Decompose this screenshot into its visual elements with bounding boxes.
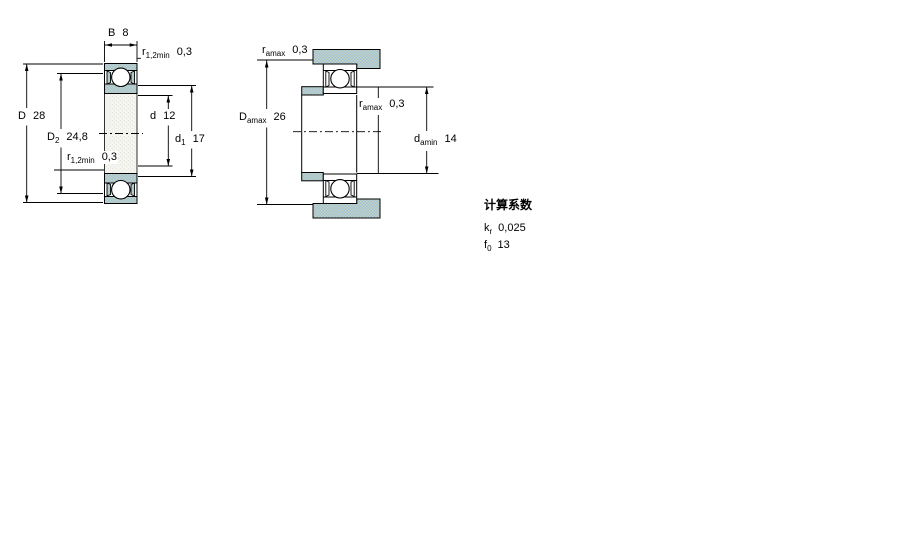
dimension-d1: [138, 86, 196, 177]
shield-left-top: [107, 71, 111, 84]
dimension-Damax: [257, 60, 313, 205]
label-r-bottom: r1,2min0,3: [66, 151, 118, 164]
bearing-top-section: [323, 64, 356, 94]
shield-right-bottom: [131, 183, 135, 196]
label-ra-top: ramax0,3: [261, 44, 309, 57]
label-damin: damin14: [413, 133, 458, 146]
calculation-factors-title: 计算系数: [484, 196, 532, 213]
label-r-top: r1,2min0,3: [141, 46, 193, 59]
label-D: D28: [17, 110, 46, 122]
shaft-shoulder-bottom: [302, 173, 324, 181]
label-d: d12: [149, 110, 176, 122]
label-D2: D224,8: [46, 131, 89, 144]
dimension-B: [105, 41, 138, 62]
ball-top: [112, 68, 130, 86]
shield-right-top: [131, 71, 135, 84]
bearing-bottom-section: [323, 174, 356, 204]
symbol-B: B: [108, 27, 115, 39]
dimension-d: [138, 96, 173, 167]
factor-kr: kr0,025: [484, 222, 532, 235]
factor-f0: f013: [484, 239, 532, 252]
value-B: 8: [122, 27, 128, 39]
right-abutment-view: [257, 50, 439, 219]
label-d1: d117: [174, 133, 206, 146]
shaft-edges: [302, 95, 357, 173]
ball-bottom: [112, 181, 130, 199]
shaft-shoulder-top: [302, 87, 324, 95]
left-bearing-section-view: [23, 41, 196, 204]
bearing-drawing-page: B8 r1,2min0,3 D28 D224,8 r1,2min0,3 d12 …: [0, 0, 900, 560]
calculation-factors-block: 计算系数 kr0,025 f013: [484, 196, 532, 256]
bearing-drawings: [0, 0, 900, 560]
label-ra-mid: ramax0,3: [358, 98, 406, 111]
label-B: B8: [107, 27, 129, 39]
label-Damax: Damax26: [238, 111, 287, 124]
shield-left-bottom: [107, 183, 111, 196]
